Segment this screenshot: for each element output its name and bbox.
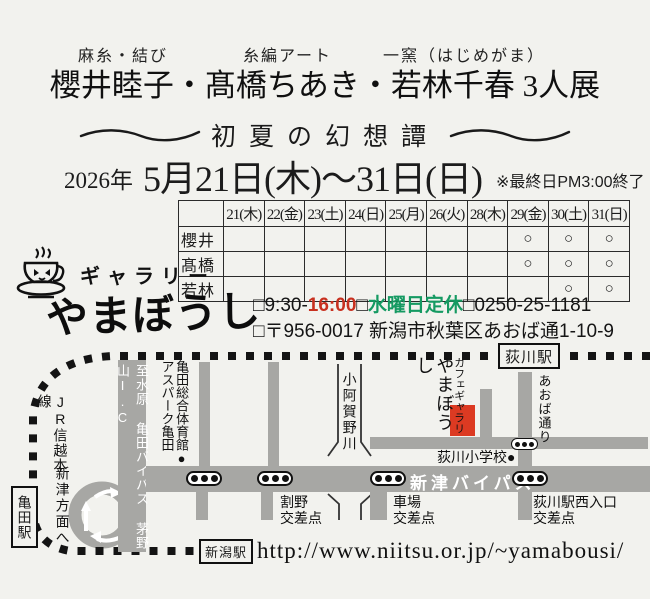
date-range: 5月21日(木)～31日(日) (143, 150, 482, 202)
schedule-corner-cell (179, 201, 224, 227)
kameda-station-label: 亀田駅 (15, 495, 35, 540)
schedule-date-header: 30(土) (548, 201, 589, 227)
phone-bullet: □ (463, 295, 474, 316)
attendance-mark-cell: ○ (548, 227, 589, 252)
traffic-signal-icon (370, 471, 406, 486)
phone-number: 0250-25-1181 (474, 295, 591, 316)
schedule-date-header: 31(日) (589, 201, 630, 227)
warino-intersection-label: 割野 交差点 (280, 495, 322, 526)
website-url: http://www.niitsu.or.jp/~yamabousi/ (257, 538, 624, 564)
schedule-row: 髙橋○○○ (179, 252, 630, 277)
hours-label: □9:30- (253, 295, 308, 316)
shaba-intersection-label: 車場 交差点 (393, 495, 435, 526)
traffic-signal-icon (186, 471, 222, 486)
minor-road-stub (261, 492, 273, 520)
attendance-mark-cell: ○ (589, 227, 630, 252)
attendance-empty-cell (467, 252, 508, 277)
attendance-empty-cell (426, 227, 467, 252)
exhibition-flyer: 麻糸・結び 糸編アート 一窯（はじめがま） 櫻井睦子・髙橋ちあき・若林千春 3人… (0, 0, 650, 599)
ogikawa-station-box: 荻川駅 (498, 343, 560, 369)
traffic-signal-icon (257, 471, 293, 486)
school-road (370, 437, 648, 449)
kameda-bypass-label: 至水原 亀田バイパス 茅野山I.C (113, 360, 151, 552)
gallery-name: やまぼうし (45, 277, 262, 345)
schedule-date-header: 25(月) (386, 201, 427, 227)
closed-day-label: 水曜日定休 (368, 295, 463, 316)
attendance-empty-cell (264, 227, 305, 252)
closing-time: 16:00 (308, 295, 357, 316)
attendance-empty-cell (305, 252, 346, 277)
attendance-empty-cell (386, 227, 427, 252)
access-map: 至水原 亀田バイパス 茅野山I.C 新津バイパス 荻川駅 亀田駅 新潟駅 JR信… (0, 340, 650, 599)
traffic-signal-icon (511, 438, 538, 450)
ogikawa-station-label: 荻川駅 (505, 346, 553, 367)
schedule-date-header: 22(金) (264, 201, 305, 227)
to-niitsu-label: 新津方面へ (54, 466, 70, 552)
niigata-station-box: 新潟駅 (199, 539, 253, 564)
school-label: 荻川小学校● (437, 450, 515, 466)
gym-label: 亀田総合体育館● アスパーク亀田 (159, 360, 188, 472)
schedule-row: 櫻井○○○ (179, 227, 630, 252)
schedule-date-header: 23(土) (305, 201, 346, 227)
closed-bullet: □ (356, 295, 367, 316)
minor-road-stub (196, 492, 208, 520)
exhibit-subtitle-row: 初夏の幻想譚 (0, 117, 650, 153)
river-label: 小阿賀野川 (341, 372, 357, 460)
exhibit-subtitle: 初夏の幻想譚 (211, 117, 439, 153)
wave-icon (449, 127, 571, 143)
date-note: ※最終日PM3:00終了 (496, 168, 645, 192)
attendance-mark-cell: ○ (508, 227, 549, 252)
traffic-signal-icon (512, 471, 548, 486)
attendance-empty-cell (345, 252, 386, 277)
ogikawa-west-intersection-label: 荻川駅西入口 交差点 (533, 495, 617, 526)
date-row: 2026年 5月21日(木)～31日(日) ※最終日PM3:00終了 (64, 150, 645, 202)
attendance-empty-cell (305, 227, 346, 252)
gallery-info-line: □9:30-16:00□水曜日定休□0250-25-1181 (253, 290, 591, 317)
kameda-station-box: 亀田駅 (11, 486, 38, 548)
exhibit-title: 櫻井睦子・髙橋ちあき・若林千春 3人展 (0, 60, 650, 105)
schedule-head: 21(木)22(金)23(土)24(日)25(月)26(火)28(木)29(金)… (179, 201, 630, 227)
schedule-date-header: 29(金) (508, 201, 549, 227)
attendance-mark-cell: ○ (589, 252, 630, 277)
schedule-date-header: 21(木) (224, 201, 265, 227)
minor-road (268, 362, 279, 466)
minor-road-stub (370, 492, 387, 520)
niigata-station-label: 新潟駅 (205, 542, 247, 561)
attendance-empty-cell (467, 227, 508, 252)
attendance-mark-cell: ○ (508, 252, 549, 277)
attendance-empty-cell (264, 252, 305, 277)
wave-icon (79, 127, 201, 143)
gallery-address: □〒956-0017 新潟市秋葉区あおば通1-10-9 (253, 316, 614, 343)
attendance-empty-cell (426, 252, 467, 277)
attendance-empty-cell (386, 252, 427, 277)
attendance-mark-cell: ○ (589, 277, 630, 302)
date-year: 2026年 (64, 161, 133, 195)
aoba-street-label: あおば通り (536, 374, 551, 444)
attendance-empty-cell (224, 227, 265, 252)
schedule-date-header: 26(火) (426, 201, 467, 227)
kameda-bypass-road: 至水原 亀田バイパス 茅野山I.C (118, 360, 146, 552)
attendance-empty-cell (345, 227, 386, 252)
schedule-date-header: 24(日) (345, 201, 386, 227)
attendance-mark-cell: ○ (548, 252, 589, 277)
minor-road (199, 362, 210, 466)
schedule-date-header: 28(木) (467, 201, 508, 227)
attendance-empty-cell (224, 252, 265, 277)
gallery-side-road (480, 389, 492, 437)
cafe-gallery-type-label: カフェギャラリー (440, 357, 465, 437)
schedule-artist-name: 櫻井 (179, 227, 224, 252)
